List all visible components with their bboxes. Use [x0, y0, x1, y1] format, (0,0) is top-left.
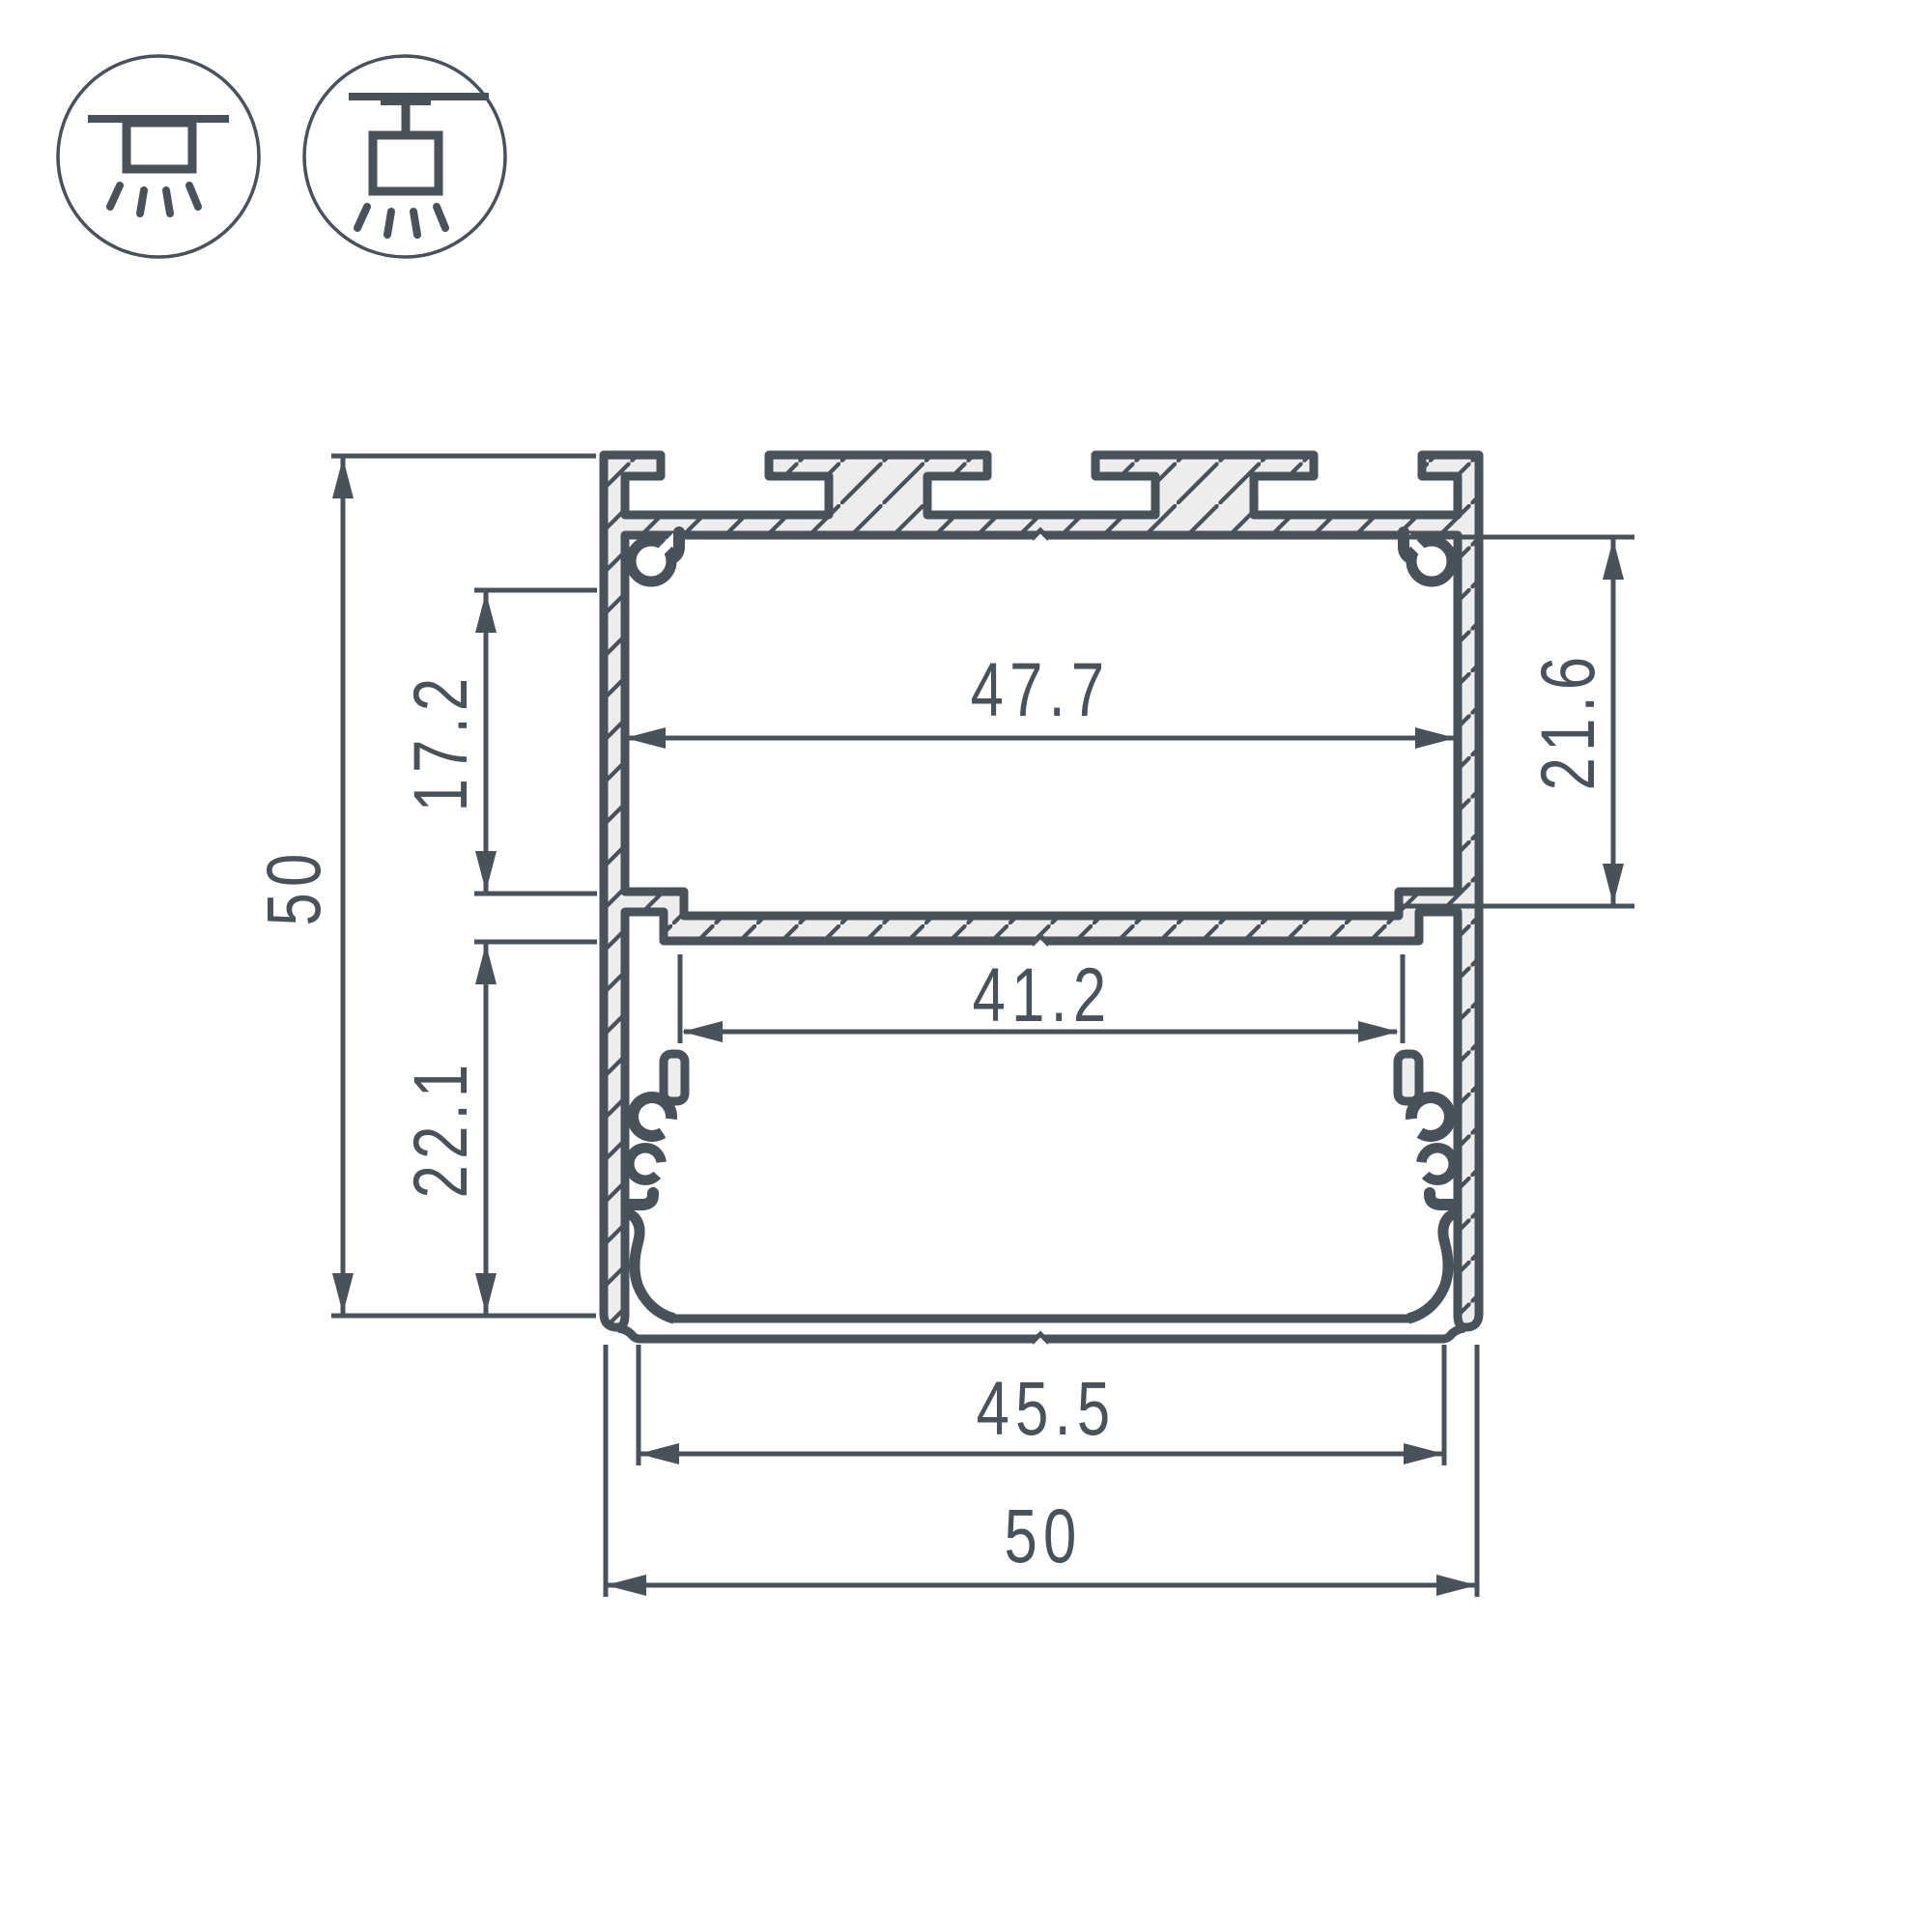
- svg-text:45.5: 45.5: [977, 1367, 1117, 1452]
- svg-text:22.1: 22.1: [399, 1059, 484, 1199]
- svg-text:50: 50: [1004, 1494, 1082, 1579]
- svg-text:47.7: 47.7: [971, 648, 1111, 733]
- svg-text:50: 50: [252, 847, 337, 925]
- svg-text:21.6: 21.6: [1526, 651, 1611, 791]
- svg-text:41.2: 41.2: [973, 953, 1113, 1038]
- svg-text:17.2: 17.2: [399, 672, 484, 812]
